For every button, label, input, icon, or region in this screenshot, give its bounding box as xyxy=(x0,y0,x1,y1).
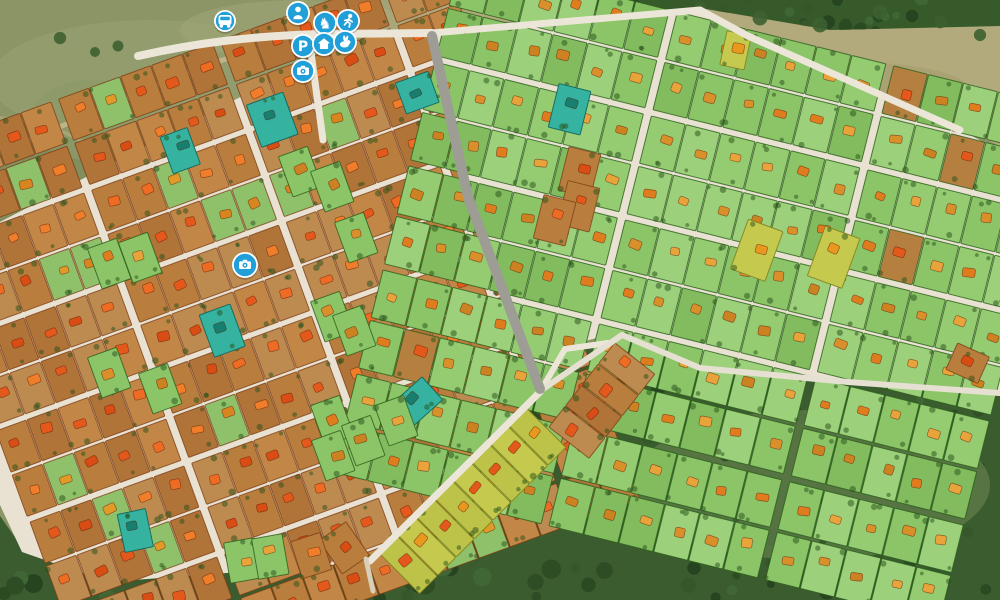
house xyxy=(436,244,446,253)
marker-bus-stop[interactable] xyxy=(214,10,236,34)
house xyxy=(670,247,680,256)
house xyxy=(901,89,913,101)
house xyxy=(773,271,784,282)
house xyxy=(674,527,686,538)
estate-map[interactable]: ♞P xyxy=(0,0,1000,600)
house xyxy=(699,416,713,428)
house xyxy=(466,421,479,433)
house xyxy=(911,478,922,488)
house xyxy=(480,366,492,376)
house xyxy=(468,141,479,152)
tree xyxy=(54,32,66,44)
house xyxy=(716,486,727,496)
house xyxy=(300,123,312,134)
house xyxy=(741,537,753,548)
house xyxy=(185,216,196,227)
house xyxy=(785,61,796,71)
house xyxy=(782,556,794,565)
house xyxy=(834,183,846,195)
marker-circle xyxy=(288,3,308,23)
house xyxy=(534,159,548,168)
marker-webcam-north[interactable] xyxy=(291,59,315,85)
house xyxy=(762,163,773,172)
house xyxy=(532,327,544,335)
tree xyxy=(934,16,947,29)
house xyxy=(521,213,535,223)
tree xyxy=(813,18,828,33)
house xyxy=(314,482,326,493)
house xyxy=(39,224,51,234)
house xyxy=(730,428,742,437)
house xyxy=(850,572,863,581)
house xyxy=(910,196,921,207)
tree xyxy=(90,47,100,57)
house xyxy=(126,521,138,532)
house xyxy=(981,212,992,223)
house xyxy=(870,353,882,364)
tree xyxy=(974,29,986,41)
house xyxy=(892,580,903,589)
house xyxy=(417,461,429,472)
house xyxy=(787,226,798,234)
house xyxy=(935,96,948,106)
house xyxy=(529,45,541,56)
house xyxy=(889,135,902,144)
tree xyxy=(753,11,768,26)
house xyxy=(643,189,656,199)
house xyxy=(758,325,771,336)
house xyxy=(494,319,506,330)
house xyxy=(935,535,947,546)
house xyxy=(351,229,362,239)
house xyxy=(793,332,805,342)
house xyxy=(756,493,770,502)
svg-text:P: P xyxy=(298,39,308,55)
house xyxy=(744,100,754,108)
parcel-zones xyxy=(0,0,1000,600)
parcel[interactable] xyxy=(252,534,289,580)
marker-reception[interactable] xyxy=(286,1,310,27)
marker-parking[interactable]: P xyxy=(291,34,315,60)
house xyxy=(169,478,181,490)
house xyxy=(206,363,217,374)
horse-icon: ♞ xyxy=(318,15,331,33)
house xyxy=(812,444,825,456)
house xyxy=(29,484,40,495)
svg-text:♞: ♞ xyxy=(318,15,331,33)
house xyxy=(241,557,253,566)
house xyxy=(770,438,783,450)
house xyxy=(732,42,745,54)
house xyxy=(945,203,956,215)
house xyxy=(818,557,830,567)
house xyxy=(443,358,454,369)
marker-sales-office[interactable] xyxy=(312,32,336,58)
house xyxy=(256,503,268,513)
house xyxy=(486,41,499,51)
marker-webcam-center[interactable] xyxy=(232,252,258,280)
house xyxy=(797,506,810,516)
house xyxy=(962,267,976,277)
tree xyxy=(873,5,888,20)
house xyxy=(432,131,444,140)
house xyxy=(580,276,594,287)
parking-icon: P xyxy=(298,39,308,55)
map-viewport[interactable]: ♞P xyxy=(0,0,1000,600)
house xyxy=(496,147,507,158)
parcel-green[interactable] xyxy=(252,534,289,580)
house xyxy=(866,524,876,533)
tree xyxy=(113,41,124,52)
marker-petting-zoo[interactable] xyxy=(333,30,357,56)
